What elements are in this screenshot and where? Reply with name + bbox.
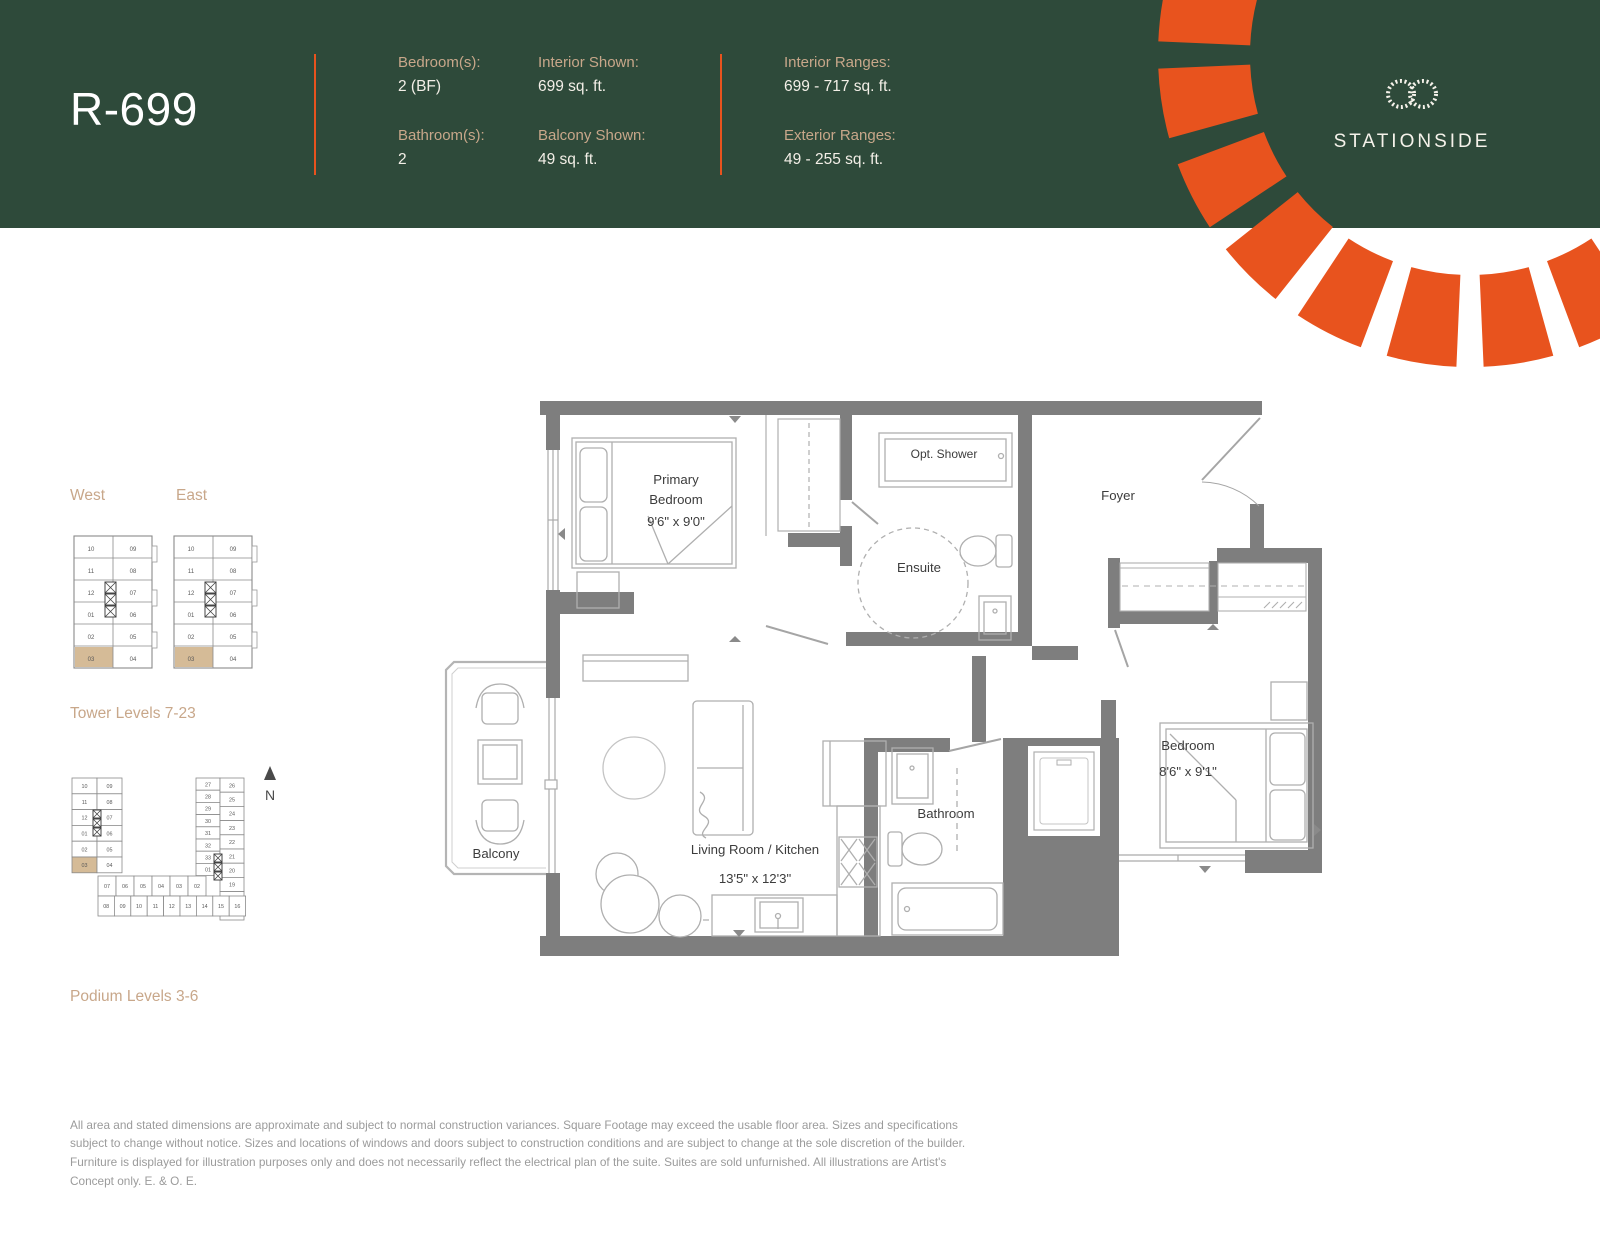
svg-text:03: 03 [176,884,182,890]
svg-text:26: 26 [229,783,235,789]
svg-text:04: 04 [158,884,164,890]
svg-text:01: 01 [188,613,195,619]
svg-text:03: 03 [82,863,88,869]
svg-text:06: 06 [122,884,128,890]
north-arrow-icon: N [264,766,276,803]
balcony-furniture [476,684,524,844]
bedroom-label: Bedroom [1161,738,1215,753]
svg-text:04: 04 [130,657,137,663]
svg-text:28: 28 [205,795,211,801]
svg-text:10: 10 [82,784,88,790]
svg-text:04: 04 [107,863,113,869]
svg-text:09: 09 [230,547,237,553]
svg-text:06: 06 [130,613,137,619]
svg-text:04: 04 [230,657,237,663]
foyer-label: Foyer [1101,488,1135,503]
svg-text:30: 30 [205,819,211,825]
ensuite [858,433,1012,640]
header-divider [720,54,722,175]
floorplan-svg: Balcony Primary Bedroom 9'6" x 9'0" [430,396,1340,961]
living-label: Living Room / Kitchen [691,842,819,857]
svg-text:02: 02 [88,635,95,641]
brand-name: STATIONSIDE [1322,131,1502,153]
header-divider [314,54,316,175]
svg-text:09: 09 [107,784,113,790]
spec-column-ranges: Interior Ranges: 699 - 717 sq. ft. Exter… [784,55,896,200]
svg-text:10: 10 [136,904,142,910]
podium-caption: Podium Levels 3-6 [70,988,198,1006]
spec-column-shown: Interior Shown: 699 sq. ft. Balcony Show… [538,55,646,200]
spec-value: 49 - 255 sq. ft. [784,152,896,168]
svg-text:10: 10 [88,547,95,553]
svg-text:07: 07 [230,591,237,597]
bathroom-label: Bathroom [917,806,974,821]
svg-text:08: 08 [130,569,137,575]
spec-label: Bathroom(s): [398,128,485,143]
spec-label: Exterior Ranges: [784,128,896,143]
north-label: N [265,787,275,803]
svg-text:03: 03 [88,657,95,663]
svg-text:25: 25 [229,798,235,804]
svg-text:33: 33 [205,856,211,862]
primary-bedroom-label: Primary [653,472,699,487]
hall-closet [766,415,840,536]
svg-text:02: 02 [194,884,200,890]
spec-value: 2 [398,152,485,168]
svg-text:06: 06 [107,832,113,838]
keyplan-west-label: West [70,487,105,505]
balcony-label: Balcony [473,846,520,861]
svg-text:11: 11 [153,904,159,910]
svg-text:24: 24 [229,812,235,818]
brand-logo: STATIONSIDE [1322,72,1502,153]
tower-keyplans-svg: 1011120102030908070605041011120102030908… [68,528,258,678]
svg-text:06: 06 [230,613,237,619]
laundry-closet [1028,746,1100,836]
page: R-699 Bedroom(s): 2 (BF) Bathroom(s): 2 … [0,0,1600,1236]
spec-label: Interior Ranges: [784,55,896,70]
spec-column-rooms: Bedroom(s): 2 (BF) Bathroom(s): 2 [398,55,485,200]
svg-text:13: 13 [185,904,191,910]
spec-value: 699 sq. ft. [538,79,646,95]
svg-text:07: 07 [104,884,110,890]
living-dim: 13'5" x 12'3" [719,871,792,886]
svg-text:15: 15 [218,904,224,910]
bathroom-fixtures [888,748,1003,935]
opt-shower-label: Opt. Shower [911,447,978,461]
svg-text:09: 09 [120,904,126,910]
svg-text:08: 08 [107,800,113,806]
svg-text:11: 11 [88,569,95,575]
svg-text:05: 05 [130,635,137,641]
spec-label: Balcony Shown: [538,128,646,143]
podium-keyplan-svg: N 10111201020309080706050427282930313233… [68,758,283,943]
svg-text:19: 19 [229,883,235,889]
svg-text:31: 31 [205,831,211,837]
spec-label: Interior Shown: [538,55,646,70]
svg-text:05: 05 [140,884,146,890]
svg-text:08: 08 [103,904,109,910]
svg-text:10: 10 [188,547,195,553]
spec-value: 49 sq. ft. [538,152,646,168]
primary-bedroom-dim: 9'6" x 9'0" [647,514,705,529]
svg-text:01: 01 [82,832,88,838]
svg-text:08: 08 [230,569,237,575]
svg-text:11: 11 [82,800,88,806]
svg-text:32: 32 [205,843,211,849]
svg-text:22: 22 [229,840,235,846]
svg-text:09: 09 [130,547,137,553]
svg-text:20: 20 [229,869,235,875]
svg-text:03: 03 [188,657,195,663]
plan-title: R-699 [70,82,198,136]
svg-text:14: 14 [202,904,208,910]
spec-label: Bedroom(s): [398,55,485,70]
svg-text:02: 02 [82,847,88,853]
svg-text:27: 27 [205,782,211,788]
svg-text:23: 23 [229,826,235,832]
svg-text:05: 05 [230,635,237,641]
svg-text:12: 12 [82,816,88,822]
svg-text:16: 16 [234,904,240,910]
keyplan-east-label: East [176,487,207,505]
spec-value: 2 (BF) [398,79,485,95]
svg-text:12: 12 [88,591,95,597]
svg-text:02: 02 [188,635,195,641]
disclaimer: All area and stated dimensions are appro… [70,1116,978,1191]
tower-caption: Tower Levels 7-23 [70,705,196,723]
bedroom-dim: 8'6" x 9'1" [1159,764,1217,779]
brand-infinity-icon [1381,72,1443,116]
ensuite-label: Ensuite [897,560,941,575]
svg-text:07: 07 [130,591,137,597]
primary-bedroom-label2: Bedroom [649,492,703,507]
svg-text:12: 12 [169,904,175,910]
balcony: Balcony [446,662,546,874]
svg-text:21: 21 [229,854,235,860]
svg-text:12: 12 [188,591,195,597]
svg-text:01: 01 [205,868,211,874]
svg-text:07: 07 [107,816,113,822]
svg-text:01: 01 [88,613,95,619]
svg-text:05: 05 [107,847,113,853]
svg-text:29: 29 [205,807,211,813]
svg-text:11: 11 [188,569,195,575]
spec-value: 699 - 717 sq. ft. [784,79,896,95]
